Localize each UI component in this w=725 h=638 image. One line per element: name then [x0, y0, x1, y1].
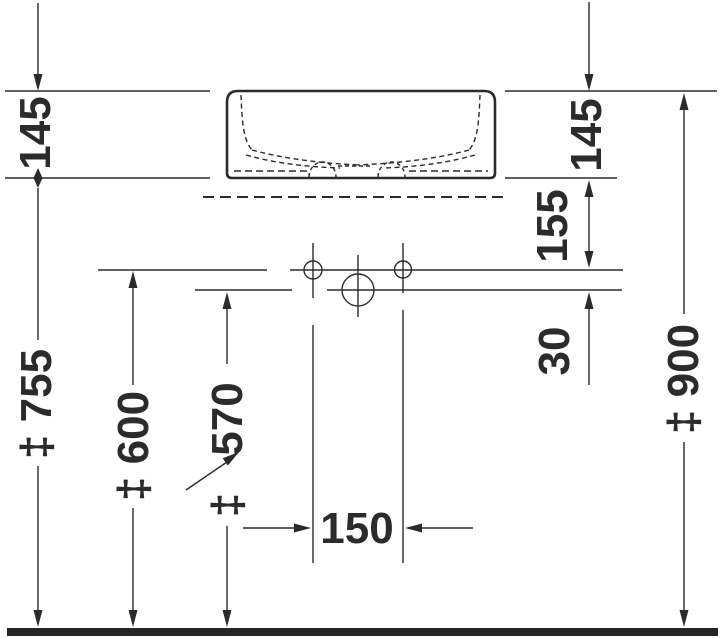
floor-line — [7, 628, 718, 636]
dim-label-30: 30 — [533, 241, 577, 461]
dim-label-570-prefix: ‡ — [206, 475, 250, 535]
basin-interior-hidden-edges — [234, 95, 488, 177]
dim-label-145-left: 145 — [14, 23, 58, 243]
washbasin-installation-drawing: 145 145 155 30 ‡ 755 ‡ 600 570 ‡ ‡ 900 1… — [0, 0, 725, 638]
dim-label-150: 150 — [297, 507, 417, 551]
basin-front-outline — [227, 91, 495, 178]
dim-label-755: ‡ 755 — [15, 294, 59, 514]
arrow-floor-600 — [129, 610, 138, 627]
arrow-floor-755 — [34, 610, 43, 627]
arrow-floor-570 — [223, 610, 232, 627]
arrow-floor-900 — [680, 610, 689, 627]
dim-label-900: ‡ 900 — [662, 269, 706, 489]
dim-label-600: ‡ 600 — [112, 336, 156, 556]
arrow-down-155 — [585, 251, 594, 268]
arrow-up-600 — [129, 271, 138, 288]
arrow-up-570 — [223, 292, 232, 309]
arrow-up-30 — [585, 292, 594, 309]
arrow-up-900 — [680, 93, 689, 110]
